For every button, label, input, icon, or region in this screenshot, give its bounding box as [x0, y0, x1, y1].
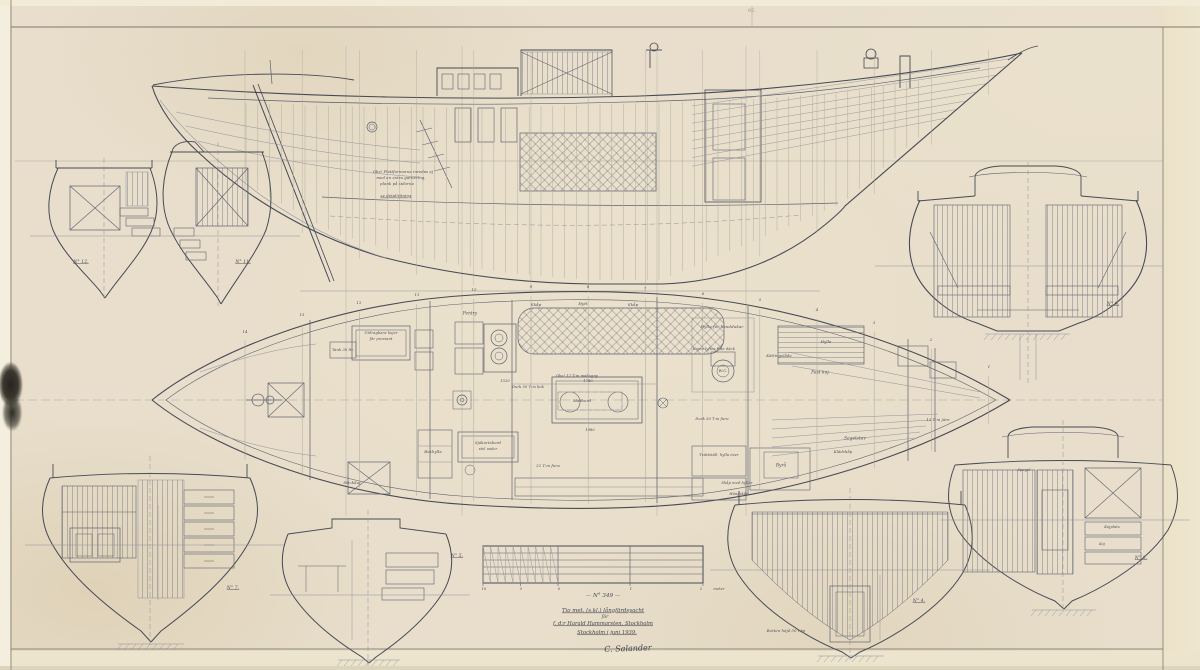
station-number: 5 [759, 298, 762, 302]
plan-label: Obs! 12 T:m mahogny [556, 374, 598, 378]
blueprint-drawing [0, 0, 1200, 670]
profile-note: Obs! Plattformarna inredas ej [373, 170, 433, 174]
plan-label: Utdragbara kojer [364, 331, 397, 335]
plan-label: Hytt [578, 302, 587, 306]
frame-label-4: N° 4. [913, 599, 925, 604]
title-line-3: f. d:r Harald Hammarsten, Stockholm [553, 621, 653, 626]
station-number: 11 [414, 293, 419, 297]
plan-label: Kättingslåda [766, 354, 792, 358]
frame-label-7: N° 7. [227, 586, 239, 591]
station-number: 8 [587, 285, 590, 289]
frame-label-8: N° 8. [1135, 556, 1147, 561]
plan-label: Durk 50 T:m bok [512, 385, 544, 389]
plan-label: Tvättställ, hylla över [699, 453, 739, 457]
sheet-mark: 92. [748, 9, 756, 14]
plan-label: W.C. [718, 369, 727, 373]
title-line-4: Stockholm i juni 1939. [577, 630, 637, 635]
plan-label: Bokhylla [424, 450, 441, 454]
plan-label: Stickkoj [343, 481, 360, 485]
plan-label: Hylla för handdukar [701, 325, 744, 329]
plan-label: Hängskåp [729, 492, 748, 496]
plan-label: Skåp [531, 303, 542, 307]
plan-label: Segelstuv [844, 436, 866, 440]
station-number: 12 [357, 301, 362, 305]
plan-label: Pentry [463, 311, 477, 315]
plan-label: Durk 30 T:m furu [695, 417, 728, 421]
frame-label-9: N° 9. [1107, 302, 1119, 307]
station-number: 13 [300, 313, 305, 317]
section-label: Kojplats [1104, 525, 1120, 529]
scale-tick: 2 [700, 587, 702, 591]
dimension-label: 1980 [585, 428, 595, 432]
plan-label: Kojen lyftes från däck [693, 347, 735, 351]
profile-note: se detaljritning [381, 194, 412, 198]
scale-tick: 0 [558, 587, 560, 591]
scale-tick: 1 [630, 587, 632, 591]
plan-label: för proviant [370, 337, 393, 341]
frame-label-5: N° 5. [451, 554, 463, 559]
signature: C. Salander [604, 644, 652, 654]
section-label: Koj [1099, 542, 1105, 545]
station-number: 3 [873, 321, 876, 325]
profile-note: plank på sidorna [380, 182, 414, 186]
station-number: 1 [987, 366, 990, 370]
plan-label: Hylla [821, 340, 832, 344]
dimension-label: 1520 [500, 379, 510, 383]
plan-label: 12 T:m järn [926, 418, 949, 422]
plan-label: Fast koj [811, 370, 828, 374]
profile-note: med en extra garnering, [376, 176, 425, 180]
station-number: 6 [701, 292, 704, 296]
frame-label-12: N° 12. [73, 260, 88, 265]
plan-label: Skåp med hyllor [721, 481, 752, 485]
section-label: Spegel [1017, 468, 1030, 472]
title-line-1: Tio met. (s.kl.) långfärdsyacht [562, 608, 644, 613]
plan-label: Byrå [776, 463, 786, 467]
scale-unit: meter [713, 587, 724, 591]
plan-label: Tank 30 ltr. [332, 348, 354, 352]
station-number: 14 [242, 330, 247, 334]
plan-label: 22 T:m furu [536, 464, 560, 468]
scale-tick: 10 [482, 587, 487, 591]
plan-label: Skåp [628, 303, 639, 307]
plan-label: Sjökortsbord [475, 441, 501, 445]
frame-label-11: N° 11. [235, 260, 250, 265]
section-label: Botten höjd 30 c/m [767, 629, 805, 633]
title-line-2: för [602, 615, 609, 620]
station-number: 9 [530, 285, 533, 289]
plan-label: Klädskåp [834, 450, 852, 454]
dimension-label: 1780 [583, 379, 593, 383]
station-number: 4 [816, 308, 819, 312]
plan-label: stol under [479, 447, 498, 450]
plan-label: Matbord [573, 399, 591, 403]
station-number: 10 [471, 288, 476, 292]
scale-tick: 5 [520, 587, 522, 591]
drawing-number: — N° 349 — [586, 593, 621, 599]
